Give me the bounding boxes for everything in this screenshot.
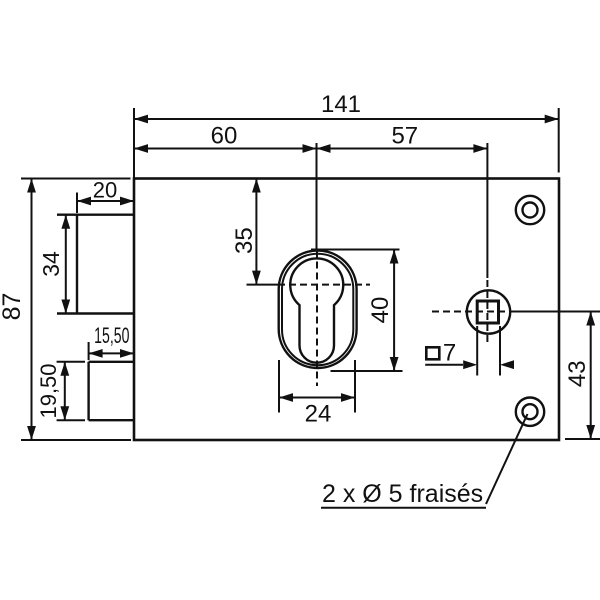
svg-text:57: 57	[391, 122, 418, 149]
svg-text:2 x Ø 5 fraisés: 2 x Ø 5 fraisés	[322, 480, 483, 508]
svg-text:15,50: 15,50	[94, 323, 129, 348]
svg-text:141: 141	[321, 91, 361, 118]
svg-text:24: 24	[305, 401, 332, 428]
svg-text:19,50: 19,50	[36, 363, 61, 418]
svg-text:87: 87	[0, 293, 26, 321]
svg-text:35: 35	[231, 227, 258, 254]
svg-text:20: 20	[93, 178, 117, 203]
svg-text:7: 7	[443, 339, 456, 366]
svg-text:34: 34	[38, 251, 64, 277]
svg-text:43: 43	[564, 360, 591, 387]
svg-text:40: 40	[367, 297, 394, 324]
svg-text:60: 60	[211, 122, 238, 149]
